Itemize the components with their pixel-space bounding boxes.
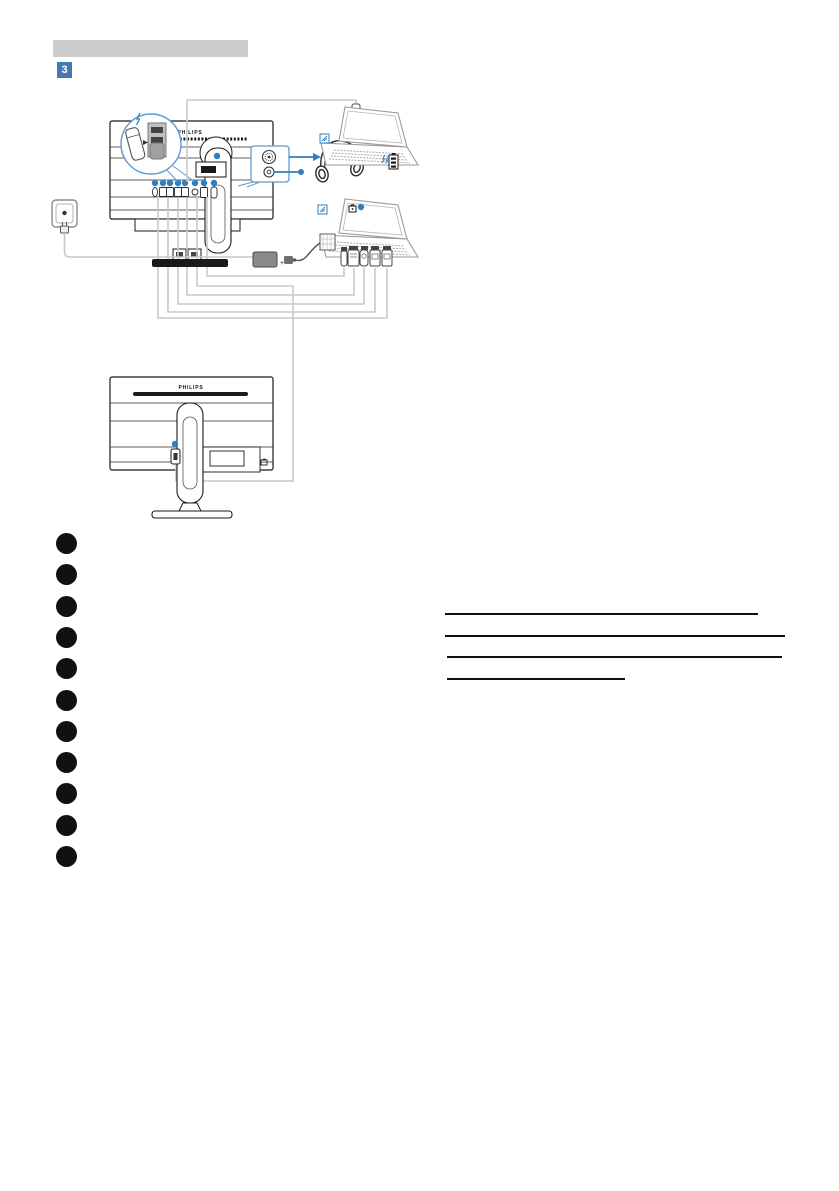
fast-charge-usb-port xyxy=(196,162,226,177)
monitor-top-stand-base xyxy=(152,259,228,267)
list-marker-circle xyxy=(56,846,77,867)
brand-logo: PHILIPS xyxy=(177,130,202,136)
headphone-arrow-head xyxy=(313,153,321,161)
laptop-bottom-icon xyxy=(321,199,418,257)
list-marker-circle xyxy=(56,690,77,711)
manual-page: 3 PHILIPS xyxy=(0,0,839,1191)
dc-cable xyxy=(296,243,320,260)
input-ports-row xyxy=(153,187,218,198)
laptop-bottom-marker xyxy=(318,205,327,214)
power-outlet-icon xyxy=(52,200,77,233)
audio-port-marker-dot xyxy=(214,153,220,159)
adapter-plus-label: + xyxy=(280,260,284,267)
section-header-bar xyxy=(53,40,248,57)
list-marker-circle xyxy=(56,533,77,554)
text-link-underline[interactable] xyxy=(447,678,625,680)
text-link-underline[interactable] xyxy=(445,635,785,637)
list-marker-circle xyxy=(56,658,77,679)
usb-plug xyxy=(150,143,164,159)
vent-strip xyxy=(133,392,248,396)
laptop-top-marker xyxy=(320,134,329,143)
list-marker-circle xyxy=(56,627,77,648)
list-marker-circle xyxy=(56,815,77,836)
laptop-top-icon xyxy=(321,107,418,165)
text-link-underline[interactable] xyxy=(445,613,758,615)
list-marker-circle xyxy=(56,752,77,773)
brand-logo: PHILIPS xyxy=(178,385,203,391)
list-marker-circle xyxy=(56,721,77,742)
text-link-underline[interactable] xyxy=(447,656,782,658)
list-marker-circle xyxy=(56,783,77,804)
list-marker-circle xyxy=(56,596,77,617)
mic-marker-dot xyxy=(298,169,304,175)
dc-connector-card xyxy=(320,234,335,250)
lock-marker-dot xyxy=(358,204,364,210)
list-marker-circle xyxy=(56,564,77,585)
power-adapter-icon: + xyxy=(253,252,296,267)
power-plug xyxy=(61,226,69,233)
stand-base xyxy=(152,511,232,518)
section-number-badge: 3 xyxy=(57,62,72,78)
port-marker-dot xyxy=(172,441,178,447)
connection-diagram: PHILIPS xyxy=(40,85,432,533)
